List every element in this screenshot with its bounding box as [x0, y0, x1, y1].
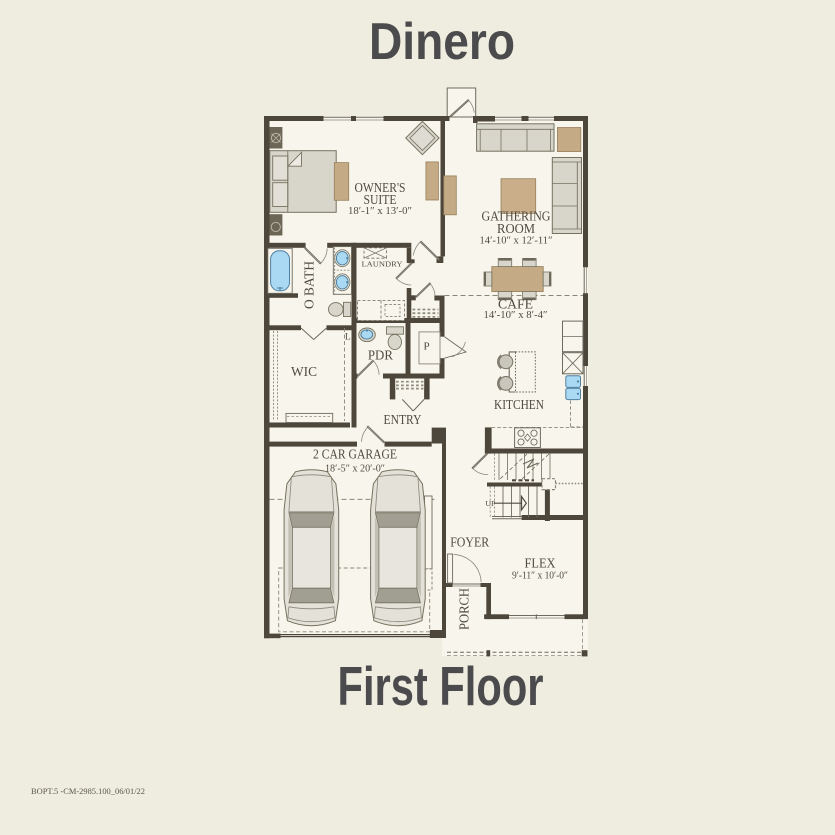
svg-text:Dinero: Dinero [369, 13, 515, 71]
svg-text:18′-5″ x 20′-0″: 18′-5″ x 20′-0″ [325, 463, 385, 475]
svg-text:P: P [424, 341, 430, 353]
svg-text:18′-1″ x 13′-0″: 18′-1″ x 13′-0″ [348, 205, 412, 217]
svg-text:14′-10″ x 8′-4″: 14′-10″ x 8′-4″ [484, 309, 548, 321]
svg-text:PORCH: PORCH [456, 588, 471, 630]
svg-text:14′-10″ x 12′-11″: 14′-10″ x 12′-11″ [480, 235, 553, 247]
svg-text:KITCHEN: KITCHEN [494, 397, 544, 412]
svg-text:9′-11″ x 10′-0″: 9′-11″ x 10′-0″ [512, 570, 568, 581]
svg-text:L: L [345, 333, 351, 343]
svg-text:2 CAR GARAGE: 2 CAR GARAGE [313, 447, 397, 462]
svg-text:FOYER: FOYER [450, 534, 489, 549]
svg-text:O BATH: O BATH [302, 261, 317, 309]
svg-text:BOPT.5 -CM-2985.100_06/01/22: BOPT.5 -CM-2985.100_06/01/22 [31, 786, 145, 796]
svg-text:WIC: WIC [291, 364, 317, 379]
svg-text:FLEX: FLEX [525, 556, 556, 571]
svg-text:First Floor: First Floor [338, 655, 544, 717]
svg-text:ENTRY: ENTRY [384, 412, 422, 427]
svg-text:LAUNDRY: LAUNDRY [362, 259, 404, 268]
svg-text:PDR: PDR [368, 348, 393, 363]
